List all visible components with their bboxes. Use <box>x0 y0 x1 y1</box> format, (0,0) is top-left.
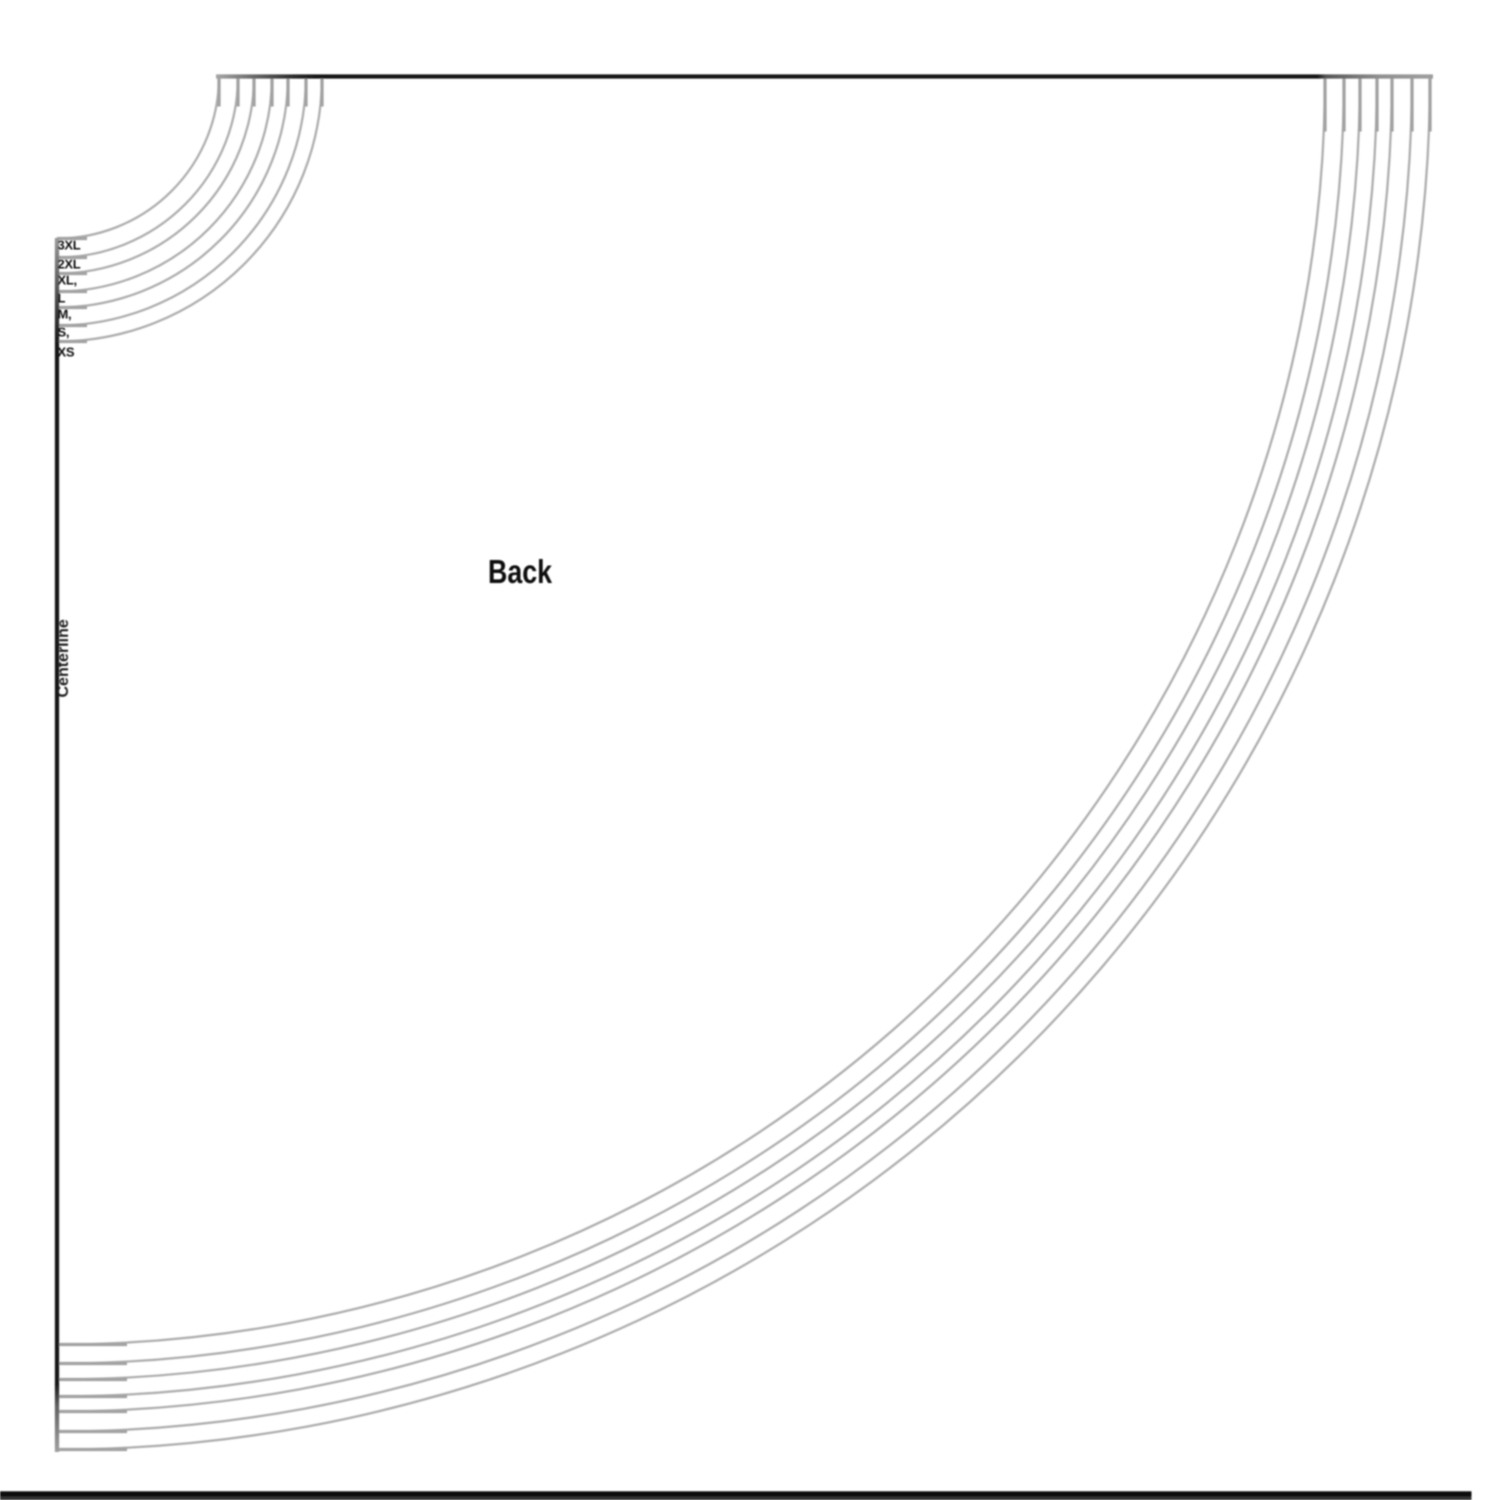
svg-text:L: L <box>58 291 66 306</box>
svg-text:Back: Back <box>488 553 553 590</box>
svg-text:M,: M, <box>58 307 72 322</box>
svg-text:2XL: 2XL <box>58 257 81 272</box>
svg-text:XS: XS <box>58 345 75 360</box>
svg-text:Centerline: Centerline <box>55 619 72 697</box>
svg-text:3XL: 3XL <box>58 238 81 253</box>
svg-text:XL,: XL, <box>58 273 77 288</box>
svg-text:S,: S, <box>58 325 70 340</box>
